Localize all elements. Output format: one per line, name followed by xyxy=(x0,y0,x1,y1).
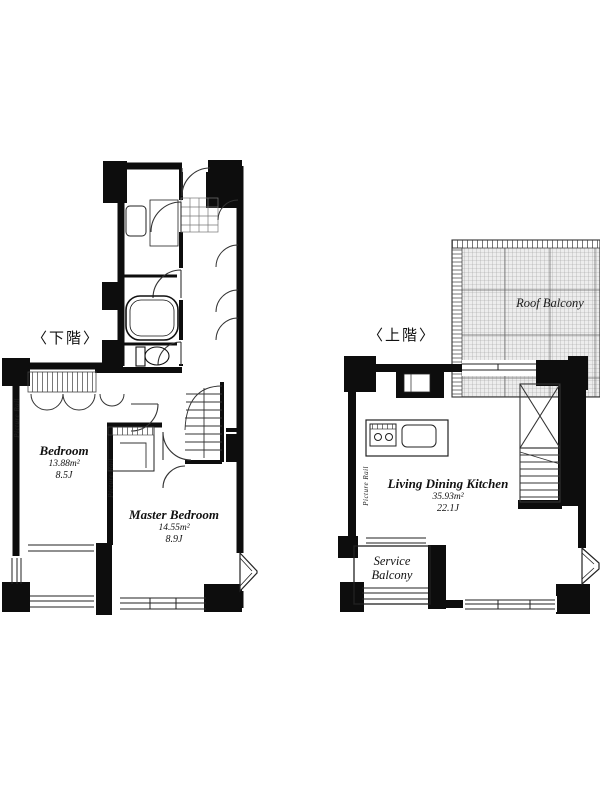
ldk-label: Living Dining Kitchen 35.93m² 22.1J xyxy=(372,477,524,514)
roof-balcony-label: Roof Balcony xyxy=(502,296,598,310)
master-bedroom-label: Master Bedroom 14.55m² 8.9J xyxy=(108,508,240,545)
picture-rail-label-ldk: Picture Rail xyxy=(362,466,370,506)
lower-floor-plan xyxy=(2,160,257,615)
upper-bottom-window xyxy=(463,596,557,612)
ldk-size: 22.1J xyxy=(372,503,524,515)
stairs-lower-icon xyxy=(185,386,222,458)
kitchen-counter-icon xyxy=(366,420,448,456)
pipe-shaft-icon xyxy=(404,374,430,392)
picture-rail-label-master: Picture Rail xyxy=(107,458,115,498)
bathtub-icon xyxy=(126,296,178,340)
master-bedroom-area: 14.55m² xyxy=(108,523,240,534)
master-bedroom-size: 8.9J xyxy=(108,534,240,546)
lower-floor-label: 〈下階〉 xyxy=(26,331,106,348)
closet-fan-doors-icon xyxy=(216,200,238,340)
stairs-upper-icon xyxy=(520,448,560,502)
upper-floor-label: 〈上階〉 xyxy=(362,328,442,345)
bedroom-area: 13.88m² xyxy=(16,459,112,470)
picture-rail-label-bedroom: Picture Rail xyxy=(13,398,21,438)
bedroom-size: 8.5J xyxy=(16,470,112,482)
bedroom-closet-icon xyxy=(28,372,124,410)
bedroom-name: Bedroom xyxy=(16,444,112,459)
service-balcony-label: Service Balcony xyxy=(354,554,430,583)
floorplan-linework xyxy=(0,0,600,800)
floorplan-page: 〈下階〉 〈上階〉 Bedroom 13.88m² 8.5J Master Be… xyxy=(0,0,600,800)
bay-window-upper-icon xyxy=(582,548,599,584)
master-bedroom-name: Master Bedroom xyxy=(108,508,240,523)
balcony-door-window xyxy=(462,360,536,376)
bedroom-label: Bedroom 13.88m² 8.5J xyxy=(16,444,112,481)
ldk-name: Living Dining Kitchen xyxy=(372,477,524,492)
ldk-area: 35.93m² xyxy=(372,492,524,503)
entry-door-icon xyxy=(182,168,210,196)
bay-window-lower-icon xyxy=(240,553,257,591)
